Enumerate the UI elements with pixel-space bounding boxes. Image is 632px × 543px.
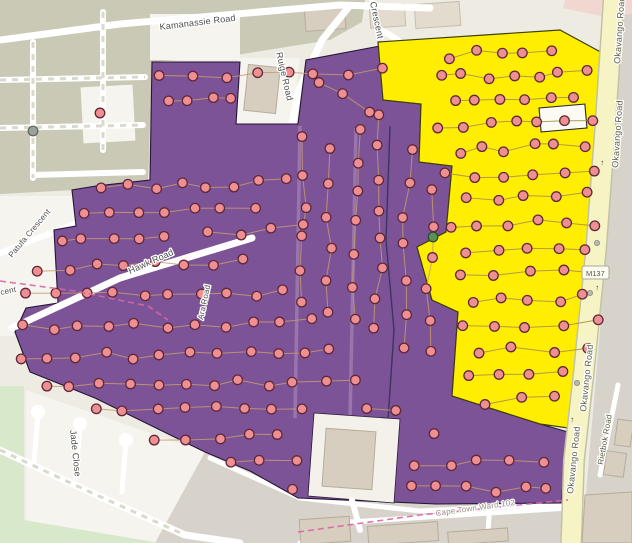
address-point-marker[interactable] xyxy=(547,46,557,56)
address-point-marker[interactable] xyxy=(274,349,284,359)
address-point-marker[interactable] xyxy=(496,293,506,303)
address-point-marker[interactable] xyxy=(494,196,504,206)
address-point-marker[interactable] xyxy=(582,66,592,76)
address-point-marker[interactable] xyxy=(409,461,419,471)
address-point-marker[interactable] xyxy=(282,174,292,184)
address-point-marker[interactable] xyxy=(222,288,232,298)
address-point-marker[interactable] xyxy=(251,203,261,213)
oneway-arrow-icon: ↑ xyxy=(595,283,600,292)
address-point-marker[interactable] xyxy=(154,71,164,81)
address-point-marker[interactable] xyxy=(428,253,438,263)
address-point-marker[interactable] xyxy=(128,354,138,364)
address-point-marker[interactable] xyxy=(427,185,437,195)
address-point-marker[interactable] xyxy=(288,485,298,495)
address-point-marker[interactable] xyxy=(247,347,257,357)
address-point-marker[interactable] xyxy=(298,220,308,230)
address-point-marker[interactable] xyxy=(549,139,559,149)
address-point-marker[interactable] xyxy=(123,180,133,190)
address-point-marker[interactable] xyxy=(470,95,480,105)
address-point-marker[interactable] xyxy=(408,145,418,155)
address-point-marker[interactable] xyxy=(421,284,431,294)
address-point-marker[interactable] xyxy=(215,203,225,213)
address-point-marker[interactable] xyxy=(154,380,164,390)
address-point-marker[interactable] xyxy=(521,482,531,492)
address-point-marker[interactable] xyxy=(550,391,560,401)
address-point-marker[interactable] xyxy=(152,184,162,194)
address-point-marker[interactable] xyxy=(338,89,348,99)
address-point-marker[interactable] xyxy=(154,350,164,360)
address-point-marker[interactable] xyxy=(553,67,563,77)
address-point-marker[interactable] xyxy=(459,123,469,133)
address-point-marker[interactable] xyxy=(370,294,380,304)
address-point-marker[interactable] xyxy=(238,254,248,264)
address-point-marker[interactable] xyxy=(539,458,549,468)
address-point-marker[interactable] xyxy=(325,144,335,154)
address-point-marker[interactable] xyxy=(265,381,275,391)
address-point-marker[interactable] xyxy=(512,116,522,126)
address-point-marker[interactable] xyxy=(42,381,52,391)
address-point-marker[interactable] xyxy=(437,71,447,81)
address-point-marker[interactable] xyxy=(445,54,455,64)
address-point-marker[interactable] xyxy=(351,216,361,226)
address-point-marker[interactable] xyxy=(456,270,466,280)
address-point-marker[interactable] xyxy=(72,321,82,331)
address-point-marker[interactable] xyxy=(498,48,508,58)
address-point-marker[interactable] xyxy=(236,230,246,240)
address-point-marker[interactable] xyxy=(405,178,415,188)
address-point-marker[interactable] xyxy=(469,298,479,308)
address-point-marker[interactable] xyxy=(275,317,285,327)
address-point-marker[interactable] xyxy=(249,317,259,327)
address-point-marker[interactable] xyxy=(51,288,61,298)
address-point-marker[interactable] xyxy=(252,291,262,301)
address-point-marker[interactable] xyxy=(42,354,52,364)
address-point-marker[interactable] xyxy=(253,68,263,78)
address-point-marker[interactable] xyxy=(164,96,174,106)
address-point-marker[interactable] xyxy=(562,218,572,228)
address-point-marker[interactable] xyxy=(470,173,480,183)
address-point-marker[interactable] xyxy=(163,290,173,300)
address-point-marker[interactable] xyxy=(520,323,530,333)
address-point-marker[interactable] xyxy=(149,435,159,445)
address-point-marker[interactable] xyxy=(209,261,219,271)
address-point-marker[interactable] xyxy=(593,315,603,325)
address-point-marker[interactable] xyxy=(190,203,200,213)
address-point-marker[interactable] xyxy=(433,123,443,133)
address-point-marker[interactable] xyxy=(134,234,144,244)
address-point-marker[interactable] xyxy=(494,246,504,256)
address-point-marker[interactable] xyxy=(580,142,590,152)
address-point-marker[interactable] xyxy=(180,403,190,413)
address-point-marker[interactable] xyxy=(287,377,297,387)
address-point-marker[interactable] xyxy=(464,371,474,381)
address-point-marker[interactable] xyxy=(226,457,236,467)
address-point-marker[interactable] xyxy=(472,221,482,231)
address-point-marker[interactable] xyxy=(314,78,324,88)
address-point-marker[interactable] xyxy=(375,233,385,243)
address-point-marker[interactable] xyxy=(201,183,211,193)
address-point-marker[interactable] xyxy=(210,381,220,391)
oneway-arrow-icon: ↑ xyxy=(600,158,605,167)
address-point-marker[interactable] xyxy=(554,244,564,254)
address-point-marker[interactable] xyxy=(489,271,499,281)
address-point-marker[interactable] xyxy=(461,193,471,203)
address-point-marker[interactable] xyxy=(354,158,364,168)
address-point-marker[interactable] xyxy=(221,323,231,333)
white-block-topleft xyxy=(81,85,136,144)
address-point-marker[interactable] xyxy=(374,206,384,216)
route-shield-text: M137 xyxy=(586,269,605,278)
address-point-marker[interactable] xyxy=(461,248,471,258)
address-point-marker[interactable] xyxy=(490,322,500,332)
address-point-marker[interactable] xyxy=(254,456,264,466)
address-point-marker[interactable] xyxy=(523,296,533,306)
address-point-marker[interactable] xyxy=(558,367,568,377)
address-point-marker[interactable] xyxy=(582,187,592,197)
address-point-marker[interactable] xyxy=(351,314,361,324)
address-point-marker[interactable] xyxy=(292,456,302,466)
address-point-marker[interactable] xyxy=(266,223,276,233)
address-point-marker[interactable] xyxy=(560,116,570,126)
address-point-marker[interactable] xyxy=(229,182,239,192)
address-point-marker[interactable] xyxy=(140,291,150,301)
address-point-marker[interactable] xyxy=(212,402,222,412)
address-point-marker[interactable] xyxy=(96,183,106,193)
address-point-marker[interactable] xyxy=(117,406,127,416)
address-point-marker[interactable] xyxy=(590,166,600,176)
address-point-marker[interactable] xyxy=(188,71,198,81)
address-point-marker[interactable] xyxy=(480,400,490,410)
address-point-marker[interactable] xyxy=(105,208,115,218)
address-point-marker[interactable] xyxy=(504,456,514,466)
address-point-marker[interactable] xyxy=(559,265,569,275)
address-point-marker[interactable] xyxy=(425,316,435,326)
address-point-marker[interactable] xyxy=(429,429,439,439)
address-point-marker[interactable] xyxy=(267,404,277,414)
address-point-marker[interactable] xyxy=(398,213,408,223)
address-point-marker[interactable] xyxy=(209,93,219,103)
address-point-marker[interactable] xyxy=(402,310,412,320)
address-point-marker[interactable] xyxy=(550,348,560,358)
address-point-marker[interactable] xyxy=(477,142,487,152)
address-point-marker[interactable] xyxy=(552,192,562,202)
address-point-marker[interactable] xyxy=(297,132,307,142)
address-point-marker[interactable] xyxy=(182,96,192,106)
address-point-marker[interactable] xyxy=(32,266,42,276)
address-point-marker[interactable] xyxy=(491,488,501,498)
address-point-marker[interactable] xyxy=(517,393,527,403)
address-point-marker[interactable] xyxy=(295,266,305,276)
address-point-marker[interactable] xyxy=(378,63,388,73)
address-point-marker[interactable] xyxy=(518,191,528,201)
address-point-marker[interactable] xyxy=(178,178,188,188)
address-point-marker[interactable] xyxy=(578,289,588,299)
address-point-marker[interactable] xyxy=(588,116,598,126)
address-point-marker[interactable] xyxy=(440,168,450,178)
address-point-marker[interactable] xyxy=(297,404,307,414)
address-point-marker[interactable] xyxy=(50,325,60,335)
address-point-marker[interactable] xyxy=(226,94,236,104)
address-point-marker[interactable] xyxy=(129,319,139,329)
address-point-marker[interactable] xyxy=(461,481,471,491)
address-point-marker[interactable] xyxy=(102,347,112,357)
address-point-marker[interactable] xyxy=(203,227,213,237)
address-point-marker[interactable] xyxy=(254,176,264,186)
address-point-marker[interactable] xyxy=(526,266,536,276)
address-point-marker[interactable] xyxy=(160,208,170,218)
address-point-marker[interactable] xyxy=(522,244,532,254)
address-point-marker[interactable] xyxy=(451,96,461,106)
address-point-marker[interactable] xyxy=(245,429,255,439)
address-point-marker[interactable] xyxy=(349,250,359,260)
address-point-marker[interactable] xyxy=(447,461,457,471)
address-point-marker[interactable] xyxy=(222,73,232,83)
address-point-marker[interactable] xyxy=(182,380,192,390)
address-point-marker[interactable] xyxy=(559,321,569,331)
address-point-marker[interactable] xyxy=(503,221,513,231)
address-point-marker[interactable] xyxy=(109,234,119,244)
address-point-marker[interactable] xyxy=(104,322,114,332)
address-point-marker[interactable] xyxy=(212,349,222,359)
address-point-marker[interactable] xyxy=(524,370,534,380)
address-point-marker[interactable] xyxy=(190,320,200,330)
address-point-marker[interactable] xyxy=(533,215,543,225)
address-point-marker[interactable] xyxy=(547,93,557,103)
address-point-marker[interactable] xyxy=(506,342,516,352)
address-point-marker[interactable] xyxy=(374,110,384,120)
address-point-marker[interactable] xyxy=(590,221,600,231)
address-point-marker[interactable] xyxy=(494,370,504,380)
address-point-marker[interactable] xyxy=(528,170,538,180)
address-point-marker[interactable] xyxy=(179,260,189,270)
address-point-marker[interactable] xyxy=(474,348,484,358)
address-point-marker[interactable] xyxy=(391,406,401,416)
address-point-marker[interactable] xyxy=(65,266,75,276)
address-point-marker[interactable] xyxy=(520,95,530,105)
address-point-marker[interactable] xyxy=(58,236,68,246)
address-point-marker[interactable] xyxy=(21,288,31,298)
address-point-marker[interactable] xyxy=(402,276,412,286)
address-point-marker[interactable] xyxy=(456,69,466,79)
address-point-marker[interactable] xyxy=(233,375,243,385)
address-point-marker[interactable] xyxy=(499,173,509,183)
address-point-marker[interactable] xyxy=(308,69,318,79)
address-point-marker[interactable] xyxy=(18,320,28,330)
address-point-marker[interactable] xyxy=(71,353,81,363)
address-point-marker[interactable] xyxy=(95,108,105,118)
address-point-marker[interactable] xyxy=(556,297,566,307)
address-point-marker[interactable] xyxy=(108,287,118,297)
address-point-marker[interactable] xyxy=(407,481,417,491)
address-point-marker[interactable] xyxy=(278,285,288,295)
address-point-marker[interactable] xyxy=(94,379,104,389)
address-point-marker[interactable] xyxy=(163,323,173,333)
address-point-marker[interactable] xyxy=(324,344,334,354)
address-point-marker[interactable] xyxy=(348,283,358,293)
address-point-marker[interactable] xyxy=(484,74,494,84)
address-point-marker[interactable] xyxy=(323,307,333,317)
address-point-marker[interactable] xyxy=(324,179,334,189)
address-point-marker[interactable] xyxy=(369,323,379,333)
address-point-marker[interactable] xyxy=(298,171,308,181)
address-point-marker[interactable] xyxy=(399,343,409,353)
address-point-marker[interactable] xyxy=(181,435,191,445)
address-point-marker[interactable] xyxy=(321,213,331,223)
address-point-marker[interactable] xyxy=(535,72,545,82)
address-point-marker[interactable] xyxy=(458,321,468,331)
address-point-marker[interactable] xyxy=(64,382,74,392)
address-point-marker[interactable] xyxy=(429,222,439,232)
address-point-marker[interactable] xyxy=(321,276,331,286)
address-point-marker[interactable] xyxy=(365,107,375,117)
address-point-marker[interactable] xyxy=(530,139,540,149)
address-point-marker[interactable] xyxy=(153,404,163,414)
address-point-marker[interactable] xyxy=(495,95,505,105)
address-point-marker[interactable] xyxy=(580,245,590,255)
map-viewport[interactable]: Kamanassie Road Ruige Road Crescent Hawk… xyxy=(0,0,632,543)
address-point-marker[interactable] xyxy=(353,186,363,196)
address-point-marker[interactable] xyxy=(510,71,520,81)
address-point-marker[interactable] xyxy=(532,117,542,127)
address-point-marker[interactable] xyxy=(541,484,551,494)
address-point-marker[interactable] xyxy=(322,376,332,386)
address-point-marker[interactable] xyxy=(456,149,466,159)
address-point-marker[interactable] xyxy=(356,125,366,135)
address-point-marker[interactable] xyxy=(472,46,482,56)
address-point-marker[interactable] xyxy=(428,232,438,242)
address-point-marker[interactable] xyxy=(126,379,136,389)
address-point-marker[interactable] xyxy=(372,140,382,150)
address-point-marker[interactable] xyxy=(28,126,38,136)
address-point-marker[interactable] xyxy=(327,243,337,253)
address-point-marker[interactable] xyxy=(307,314,317,324)
address-point-marker[interactable] xyxy=(134,208,144,218)
address-point-marker[interactable] xyxy=(426,347,436,357)
address-point-marker[interactable] xyxy=(92,404,102,414)
address-point-marker[interactable] xyxy=(76,234,86,244)
address-point-marker[interactable] xyxy=(297,231,307,241)
address-point-marker[interactable] xyxy=(446,223,456,233)
address-point-marker[interactable] xyxy=(79,209,89,219)
address-point-marker[interactable] xyxy=(240,404,250,414)
address-point-marker[interactable] xyxy=(560,168,570,178)
address-point-marker[interactable] xyxy=(499,147,509,157)
address-point-marker[interactable] xyxy=(301,203,311,213)
oneway-arrow-icon: ↑ xyxy=(570,415,575,424)
address-point-marker[interactable] xyxy=(569,93,579,103)
address-point-marker[interactable] xyxy=(300,348,310,358)
address-point-marker[interactable] xyxy=(374,175,384,185)
address-point-marker[interactable] xyxy=(351,375,361,385)
address-point-marker[interactable] xyxy=(16,354,26,364)
address-point-marker[interactable] xyxy=(487,118,497,128)
address-point-marker[interactable] xyxy=(92,259,102,269)
address-point-marker[interactable] xyxy=(398,238,408,248)
address-point-marker[interactable] xyxy=(216,434,226,444)
address-point-marker[interactable] xyxy=(362,404,372,414)
address-point-marker[interactable] xyxy=(431,481,441,491)
address-point-marker[interactable] xyxy=(378,263,388,273)
address-point-marker[interactable] xyxy=(297,297,307,307)
address-point-marker[interactable] xyxy=(471,455,481,465)
address-point-marker[interactable] xyxy=(518,48,528,58)
address-point-marker[interactable] xyxy=(185,347,195,357)
address-point-marker[interactable] xyxy=(344,70,354,80)
address-point-marker[interactable] xyxy=(159,232,169,242)
address-point-marker[interactable] xyxy=(272,430,282,440)
